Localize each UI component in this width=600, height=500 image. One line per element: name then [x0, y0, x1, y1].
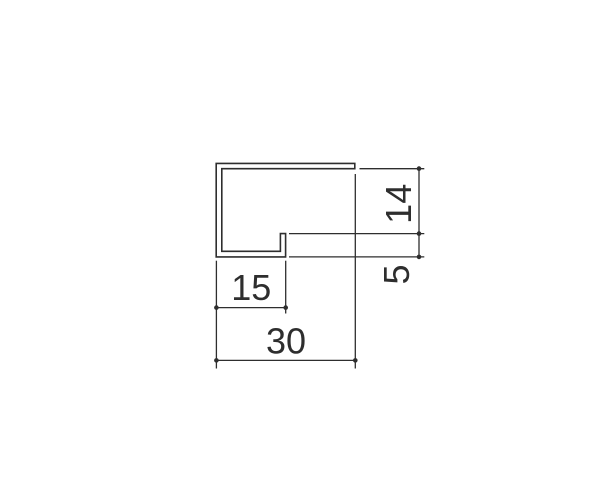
svg-text:30: 30 — [266, 321, 306, 362]
svg-text:5: 5 — [376, 264, 417, 284]
svg-text:15: 15 — [231, 267, 271, 308]
svg-text:14: 14 — [378, 184, 419, 224]
